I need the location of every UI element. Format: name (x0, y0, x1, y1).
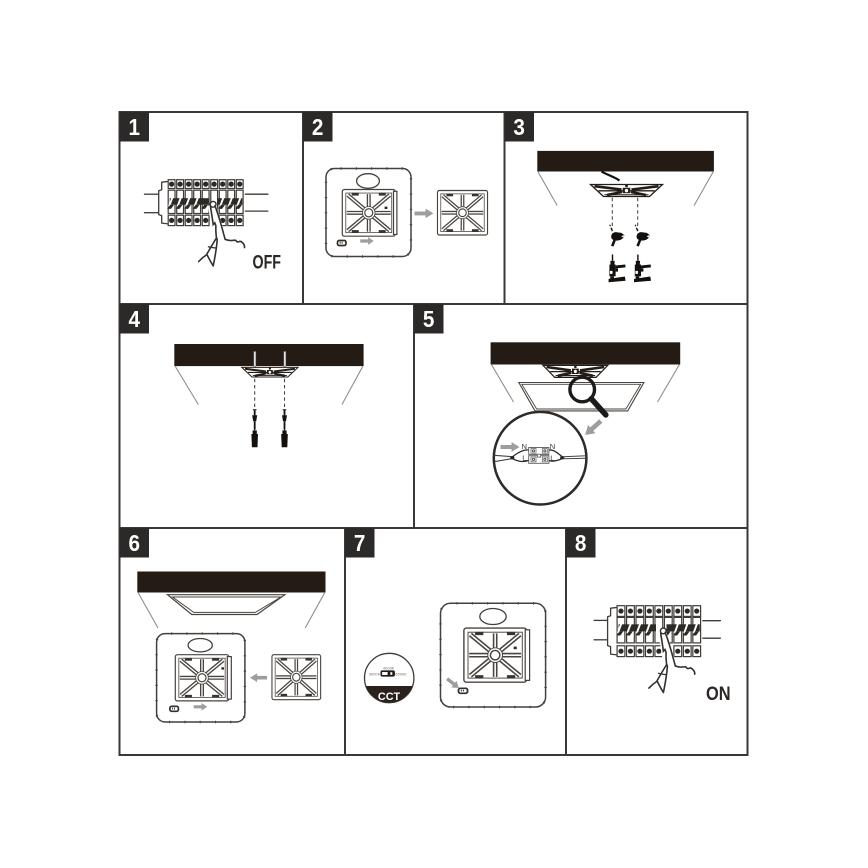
svg-text:OFF: OFF (253, 251, 281, 273)
svg-text:6: 6 (128, 530, 140, 556)
svg-text:N: N (550, 442, 555, 451)
svg-text:3000K: 3000K (369, 671, 381, 676)
svg-text:ON: ON (706, 683, 731, 705)
svg-text:7: 7 (354, 530, 366, 556)
svg-text:1: 1 (128, 114, 140, 140)
svg-text:3: 3 (513, 114, 525, 140)
svg-text:N: N (522, 442, 527, 451)
svg-text:2: 2 (312, 114, 324, 140)
svg-text:4000K: 4000K (383, 666, 395, 671)
svg-text:4: 4 (128, 306, 140, 332)
svg-text:L: L (550, 453, 554, 462)
svg-text:6500K: 6500K (395, 671, 407, 676)
svg-text:CCT: CCT (378, 691, 401, 703)
svg-text:5: 5 (423, 306, 435, 332)
svg-text:L: L (522, 453, 526, 462)
svg-text:8: 8 (575, 530, 587, 556)
